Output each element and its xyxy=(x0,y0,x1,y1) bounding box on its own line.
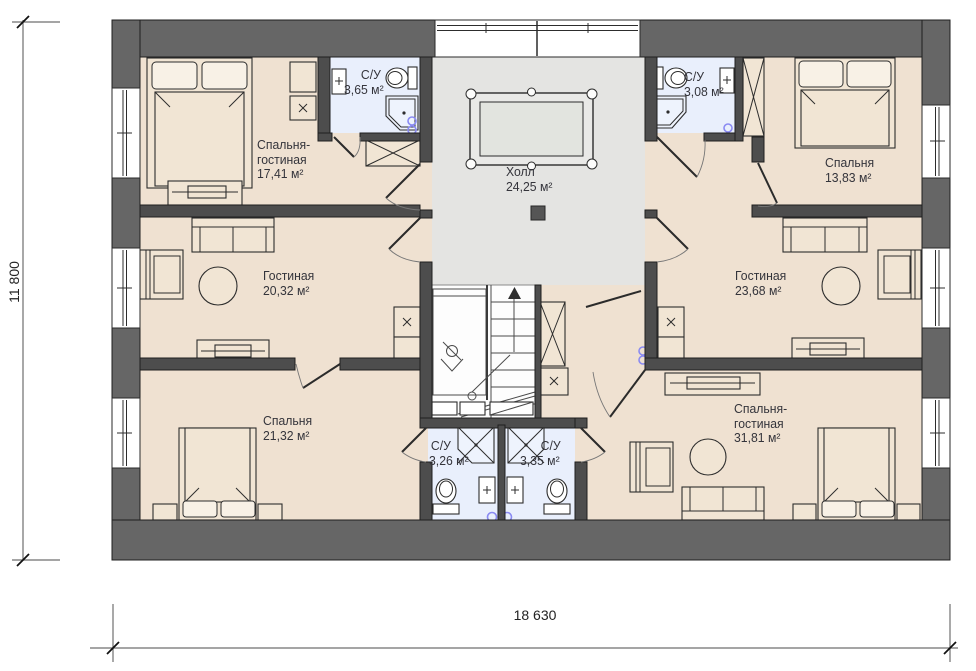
room-name: С/У xyxy=(431,439,469,454)
room-area: 3,26 м² xyxy=(429,454,469,469)
room-area: 20,32 м² xyxy=(263,284,314,299)
room-name: Гостиная xyxy=(263,269,314,284)
bed xyxy=(147,58,252,188)
room-label-living-left: Гостиная 20,32 м² xyxy=(263,269,314,298)
room-area: 24,25 м² xyxy=(506,180,552,195)
cabinet xyxy=(394,307,420,362)
room-name: Спальня xyxy=(825,156,874,171)
armchair xyxy=(878,250,921,299)
tv-stand xyxy=(665,373,760,395)
floor-staircase xyxy=(428,285,535,418)
cabinet xyxy=(658,307,684,362)
window xyxy=(112,248,140,328)
room-area: 31,81 м² xyxy=(734,431,800,446)
room-name: Спальня-гостиная xyxy=(257,138,323,167)
room-name: Гостиная xyxy=(735,269,786,284)
room-label-bath-tl: С/У 3,65 м² xyxy=(344,68,384,97)
coffee-table xyxy=(822,267,860,305)
room-label-bedroom-bl: Спальня 21,32 м² xyxy=(263,414,312,443)
room-area: 13,83 м² xyxy=(825,171,874,186)
dimension-width-label: 18 630 xyxy=(495,607,575,623)
room-label-bedroom-living-tl: Спальня-гостиная 17,41 м² xyxy=(257,138,323,182)
room-name: С/У xyxy=(684,70,724,85)
room-label-living-right: Гостиная 23,68 м² xyxy=(735,269,786,298)
room-label-bath-br: С/У 3,35 м² xyxy=(520,439,561,468)
wardrobe xyxy=(366,140,420,166)
sofa xyxy=(783,218,867,252)
wardrobe xyxy=(743,58,764,136)
room-name: Холл xyxy=(506,165,552,180)
room-area: 3,65 м² xyxy=(344,83,384,98)
room-area: 21,32 м² xyxy=(263,429,312,444)
sink xyxy=(479,477,495,503)
bed xyxy=(795,58,895,148)
window xyxy=(922,105,950,178)
cabinet xyxy=(290,62,316,120)
floor-plan-drawing xyxy=(0,0,976,671)
window xyxy=(112,88,140,178)
tv-stand xyxy=(168,181,242,205)
column xyxy=(531,206,545,220)
window xyxy=(112,398,140,468)
window xyxy=(922,248,950,328)
toilet xyxy=(654,67,687,89)
window xyxy=(435,20,640,57)
dimension-width-value: 18 630 xyxy=(514,607,557,623)
coffee-table xyxy=(199,267,237,305)
window xyxy=(922,398,950,468)
dimension-height-value: 11 800 xyxy=(6,261,22,303)
sofa xyxy=(192,218,274,252)
sofa xyxy=(682,487,764,520)
room-area: 23,68 м² xyxy=(735,284,786,299)
armchair xyxy=(630,442,673,492)
room-name: Спальня-гостиная xyxy=(734,402,800,431)
armchair xyxy=(140,250,183,299)
floor-plan: Спальня-гостиная 17,41 м² С/У 3,65 м² Хо… xyxy=(0,0,976,671)
room-label-bath-tr: С/У 3,08 м² xyxy=(684,70,724,99)
dimension-height-label: 11 800 xyxy=(6,254,22,310)
room-label-hall: Холл 24,25 м² xyxy=(506,165,552,194)
room-name: Спальня xyxy=(263,414,312,429)
coffee-table xyxy=(690,439,726,475)
room-area: 17,41 м² xyxy=(257,167,323,182)
sink xyxy=(507,477,523,503)
billiard-table xyxy=(466,88,597,170)
room-area: 3,35 м² xyxy=(520,454,561,469)
room-label-bedroom-living-br: Спальня-гостиная 31,81 м² xyxy=(734,402,800,446)
wardrobe xyxy=(540,302,568,395)
room-name: С/У xyxy=(361,68,384,83)
room-area: 3,08 м² xyxy=(684,85,724,100)
toilet xyxy=(386,67,417,89)
room-label-bath-bl: С/У 3,26 м² xyxy=(429,439,469,468)
room-label-bedroom-tr: Спальня 13,83 м² xyxy=(825,156,874,185)
room-name: С/У xyxy=(541,439,561,454)
